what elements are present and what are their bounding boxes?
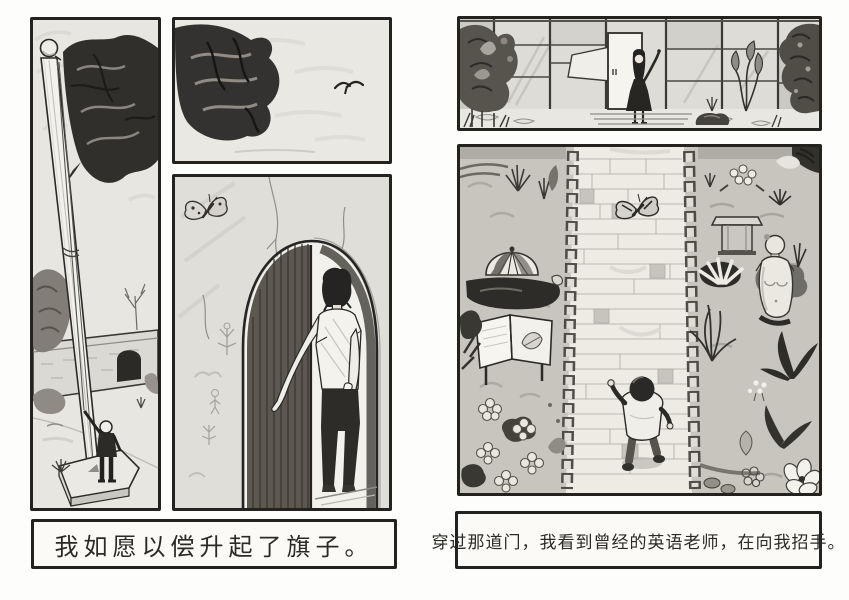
panel-arched-doorway	[172, 174, 392, 511]
panel-teacher-waving	[457, 16, 822, 131]
flag-raising-art	[33, 20, 158, 508]
panel-flag-raising	[30, 17, 161, 511]
flag-closeup-art	[175, 20, 389, 161]
panel-flag-closeup	[172, 17, 392, 164]
comic-spread: 我如愿以偿升起了旗子。	[0, 0, 849, 600]
left-caption-text: 我如愿以偿升起了旗子。	[55, 527, 374, 562]
teacher-waving-art	[460, 19, 819, 128]
right-caption-box: 穿过那道门，我看到曾经的英语老师，在向我招手。	[455, 511, 822, 569]
arched-doorway-art	[175, 177, 389, 508]
left-caption-box: 我如愿以偿升起了旗子。	[31, 519, 397, 569]
right-caption-text: 穿过那道门，我看到曾经的英语老师，在向我招手。	[432, 528, 846, 553]
garden-path-art	[460, 147, 819, 493]
panel-garden-path	[457, 144, 822, 496]
